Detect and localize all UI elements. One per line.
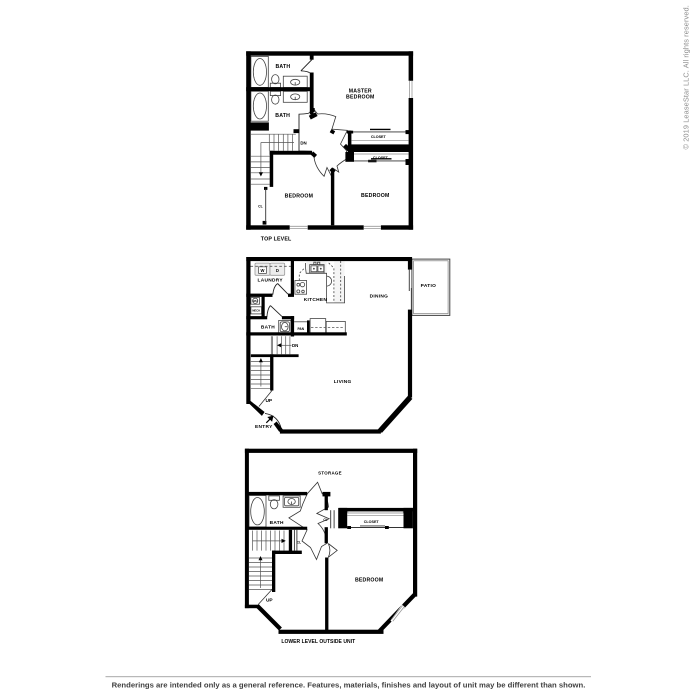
svg-text:LAUNDRY: LAUNDRY xyxy=(258,278,284,284)
svg-text:PAN: PAN xyxy=(297,327,304,331)
svg-text:CLOSET: CLOSET xyxy=(371,135,387,139)
svg-text:BEDROOM: BEDROOM xyxy=(361,193,390,199)
svg-text:BATH: BATH xyxy=(261,325,275,331)
svg-text:BEDROOM: BEDROOM xyxy=(285,194,314,200)
svg-text:WH: WH xyxy=(253,299,257,303)
svg-text:CL: CL xyxy=(297,540,301,544)
svg-text:LIVING: LIVING xyxy=(334,379,352,385)
svg-text:CL: CL xyxy=(323,518,327,522)
svg-text:ENTRY: ENTRY xyxy=(255,424,273,430)
svg-text:DINING: DINING xyxy=(370,294,389,300)
svg-text:DN: DN xyxy=(292,343,298,348)
svg-text:BATH: BATH xyxy=(275,64,290,70)
svg-text:BEDROOM: BEDROOM xyxy=(355,577,384,583)
svg-text:UP: UP xyxy=(265,398,272,404)
svg-text:KITCHEN: KITCHEN xyxy=(304,297,328,303)
svg-text:CLOSET: CLOSET xyxy=(364,520,380,524)
svg-text:© 2019 LeaseStar LLC. All righ: © 2019 LeaseStar LLC. All rights reserve… xyxy=(682,5,691,149)
svg-text:D: D xyxy=(276,268,279,273)
svg-text:Renderings are intended only a: Renderings are intended only as a genera… xyxy=(112,680,586,689)
svg-text:STORAGE: STORAGE xyxy=(318,470,342,475)
svg-text:LOWER LEVEL OUTSIDE UNIT: LOWER LEVEL OUTSIDE UNIT xyxy=(281,639,355,645)
svg-text:UP: UP xyxy=(266,598,273,604)
svg-text:MECH: MECH xyxy=(252,309,260,313)
svg-text:DN: DN xyxy=(300,140,306,145)
svg-text:BATH: BATH xyxy=(275,113,290,119)
svg-text:TOP LEVEL: TOP LEVEL xyxy=(261,237,292,243)
svg-text:CLOSET: CLOSET xyxy=(373,156,389,160)
svg-text:PATIO: PATIO xyxy=(421,283,436,289)
svg-text:W: W xyxy=(261,268,265,273)
svg-text:BEDROOM: BEDROOM xyxy=(346,95,375,101)
svg-text:BATH: BATH xyxy=(270,520,284,526)
svg-text:CL: CL xyxy=(258,204,263,208)
